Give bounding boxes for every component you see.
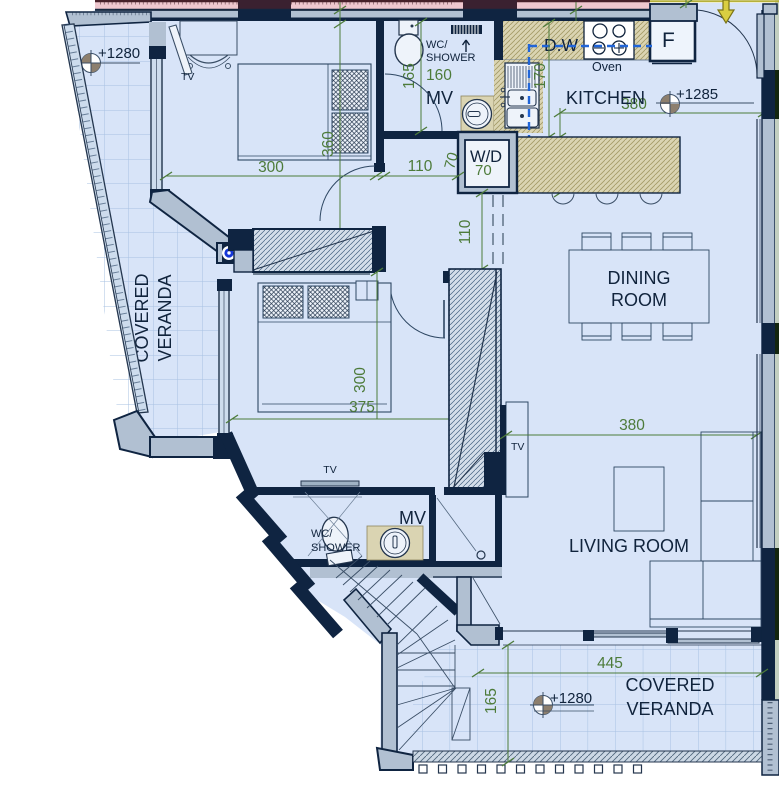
- svg-text:70: 70: [475, 162, 492, 179]
- svg-text:445: 445: [597, 655, 623, 672]
- svg-text:TV: TV: [181, 71, 194, 83]
- svg-text:380: 380: [619, 417, 645, 434]
- svg-text:375: 375: [349, 399, 375, 416]
- svg-text:360: 360: [320, 131, 337, 157]
- svg-text:Oven: Oven: [592, 60, 622, 74]
- svg-text:160: 160: [426, 67, 452, 84]
- svg-text:SHOWER: SHOWER: [311, 542, 361, 554]
- svg-text:170: 170: [532, 63, 549, 89]
- svg-text:300: 300: [258, 159, 284, 176]
- svg-text:165: 165: [401, 63, 418, 89]
- svg-text:KITCHEN: KITCHEN: [566, 88, 645, 108]
- svg-text:SHOWER: SHOWER: [426, 52, 476, 64]
- svg-text:WC/: WC/: [311, 528, 333, 540]
- svg-text:MV: MV: [399, 508, 426, 528]
- svg-text:+1280: +1280: [550, 690, 592, 707]
- svg-text:COVERED: COVERED: [625, 675, 714, 695]
- svg-text:WC/: WC/: [426, 39, 448, 51]
- svg-text:+1285: +1285: [676, 86, 718, 103]
- svg-text:F: F: [662, 29, 675, 52]
- svg-text:VERANDA: VERANDA: [155, 274, 175, 361]
- svg-text:300: 300: [352, 367, 369, 393]
- svg-text:MV: MV: [426, 88, 453, 108]
- svg-text:LIVING ROOM: LIVING ROOM: [569, 536, 689, 556]
- svg-text:+1280: +1280: [98, 45, 140, 62]
- svg-text:DINING: DINING: [608, 268, 671, 288]
- svg-text:ROOM: ROOM: [611, 290, 667, 310]
- svg-text:110: 110: [408, 158, 433, 175]
- svg-text:VERANDA: VERANDA: [626, 699, 713, 719]
- svg-text:TV: TV: [323, 464, 336, 476]
- svg-text:110: 110: [457, 219, 474, 244]
- svg-text:TV: TV: [511, 441, 524, 453]
- svg-text:165: 165: [483, 688, 500, 714]
